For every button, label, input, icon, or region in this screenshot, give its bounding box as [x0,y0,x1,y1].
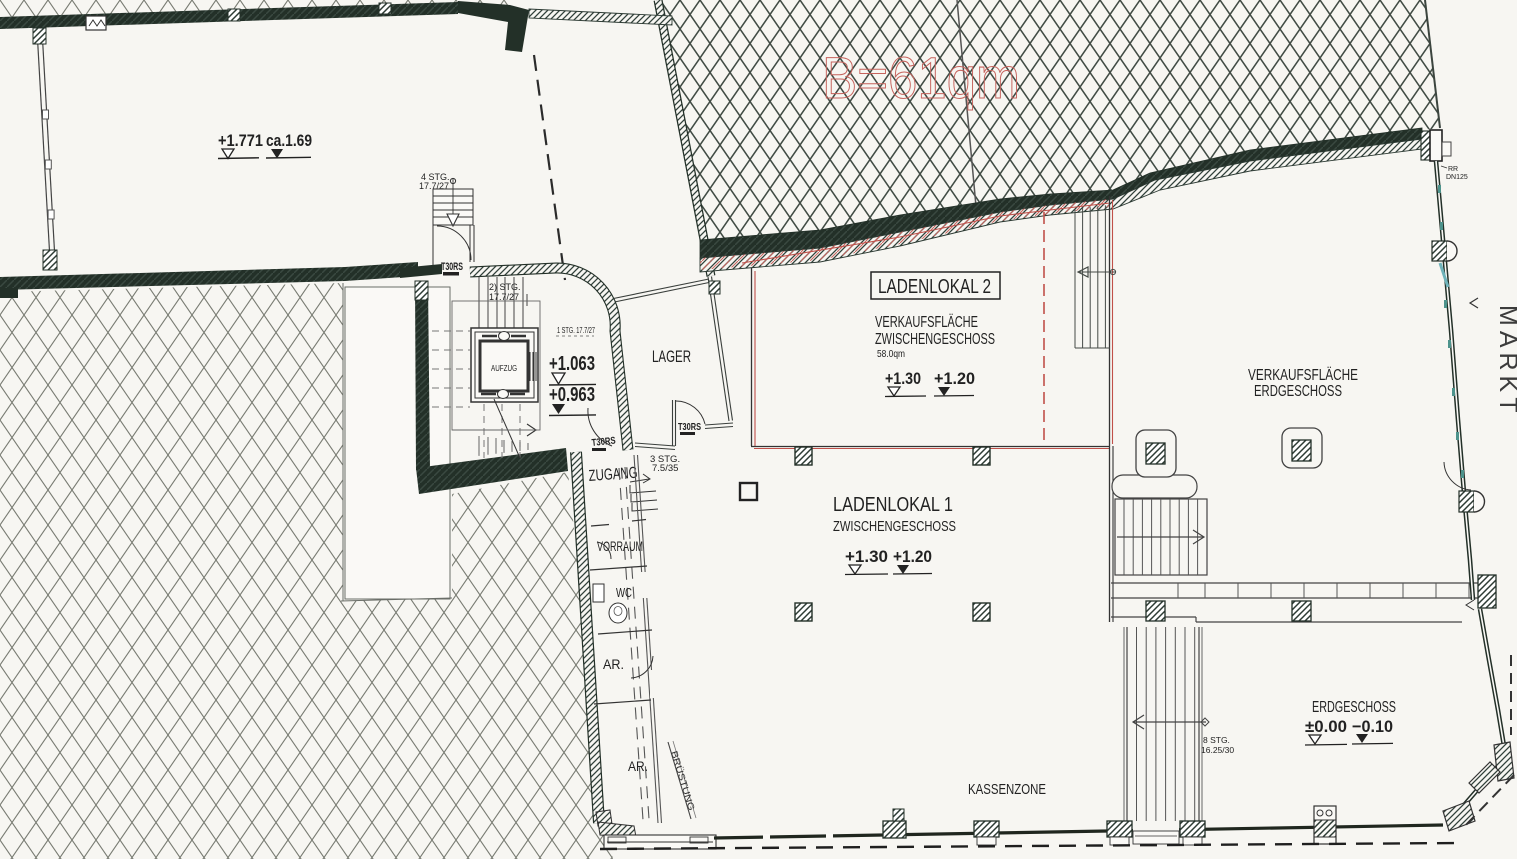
svg-text:+1.30: +1.30 [845,547,888,566]
svg-text:ERDGESCHOSS: ERDGESCHOSS [1254,383,1342,400]
svg-text:LAGER: LAGER [652,347,691,366]
svg-text:16.25/30: 16.25/30 [1201,745,1234,755]
svg-text:+1.20: +1.20 [934,369,975,388]
svg-text:LADENLOKAL 2: LADENLOKAL 2 [878,276,991,298]
svg-text:LADENLOKAL 1: LADENLOKAL 1 [833,494,953,516]
svg-text:DN125: DN125 [1446,174,1468,181]
svg-text:AR.: AR. [628,758,648,774]
svg-text:−0.10: −0.10 [1352,717,1393,736]
svg-text:58.0qm: 58.0qm [877,348,905,360]
svg-text:T30RS: T30RS [441,261,463,273]
svg-text:ca.1.69: ca.1.69 [266,131,312,150]
svg-text:8 STG.: 8 STG. [1203,735,1230,745]
svg-text:AR.: AR. [603,656,624,672]
svg-text:VERKAUFSFLÄCHE: VERKAUFSFLÄCHE [1248,367,1358,384]
svg-text:1 STG. 17.7/27: 1 STG. 17.7/27 [557,326,595,335]
svg-text:VORRAUM: VORRAUM [597,538,643,554]
svg-text:RR: RR [1448,166,1458,173]
svg-text:+1.20: +1.20 [893,547,932,566]
svg-text:MARKT: MARKT [1494,305,1517,418]
svg-text:+1.30: +1.30 [885,369,921,388]
svg-text:ERDGESCHOSS: ERDGESCHOSS [1312,699,1396,716]
svg-text:ZWISCHENGESCHOSS: ZWISCHENGESCHOSS [833,518,956,535]
svg-text:B=61qm: B=61qm [822,46,1020,111]
svg-text:7.5/35: 7.5/35 [652,463,678,474]
svg-text:AUFZUG: AUFZUG [491,364,517,373]
svg-text:VERKAUFSFLÄCHE: VERKAUFSFLÄCHE [875,314,978,331]
svg-text:WC: WC [616,585,632,600]
svg-text:17.7/27: 17.7/27 [489,292,519,302]
svg-text:+1.771: +1.771 [218,131,263,150]
svg-text:ZWISCHENGESCHOSS: ZWISCHENGESCHOSS [875,331,995,348]
svg-text:T30RS: T30RS [678,421,701,433]
svg-text:+0.963: +0.963 [549,384,595,406]
svg-text:KASSENZONE: KASSENZONE [968,781,1046,798]
svg-text:±0.00: ±0.00 [1305,717,1347,736]
svg-text:+1.063: +1.063 [549,353,595,375]
